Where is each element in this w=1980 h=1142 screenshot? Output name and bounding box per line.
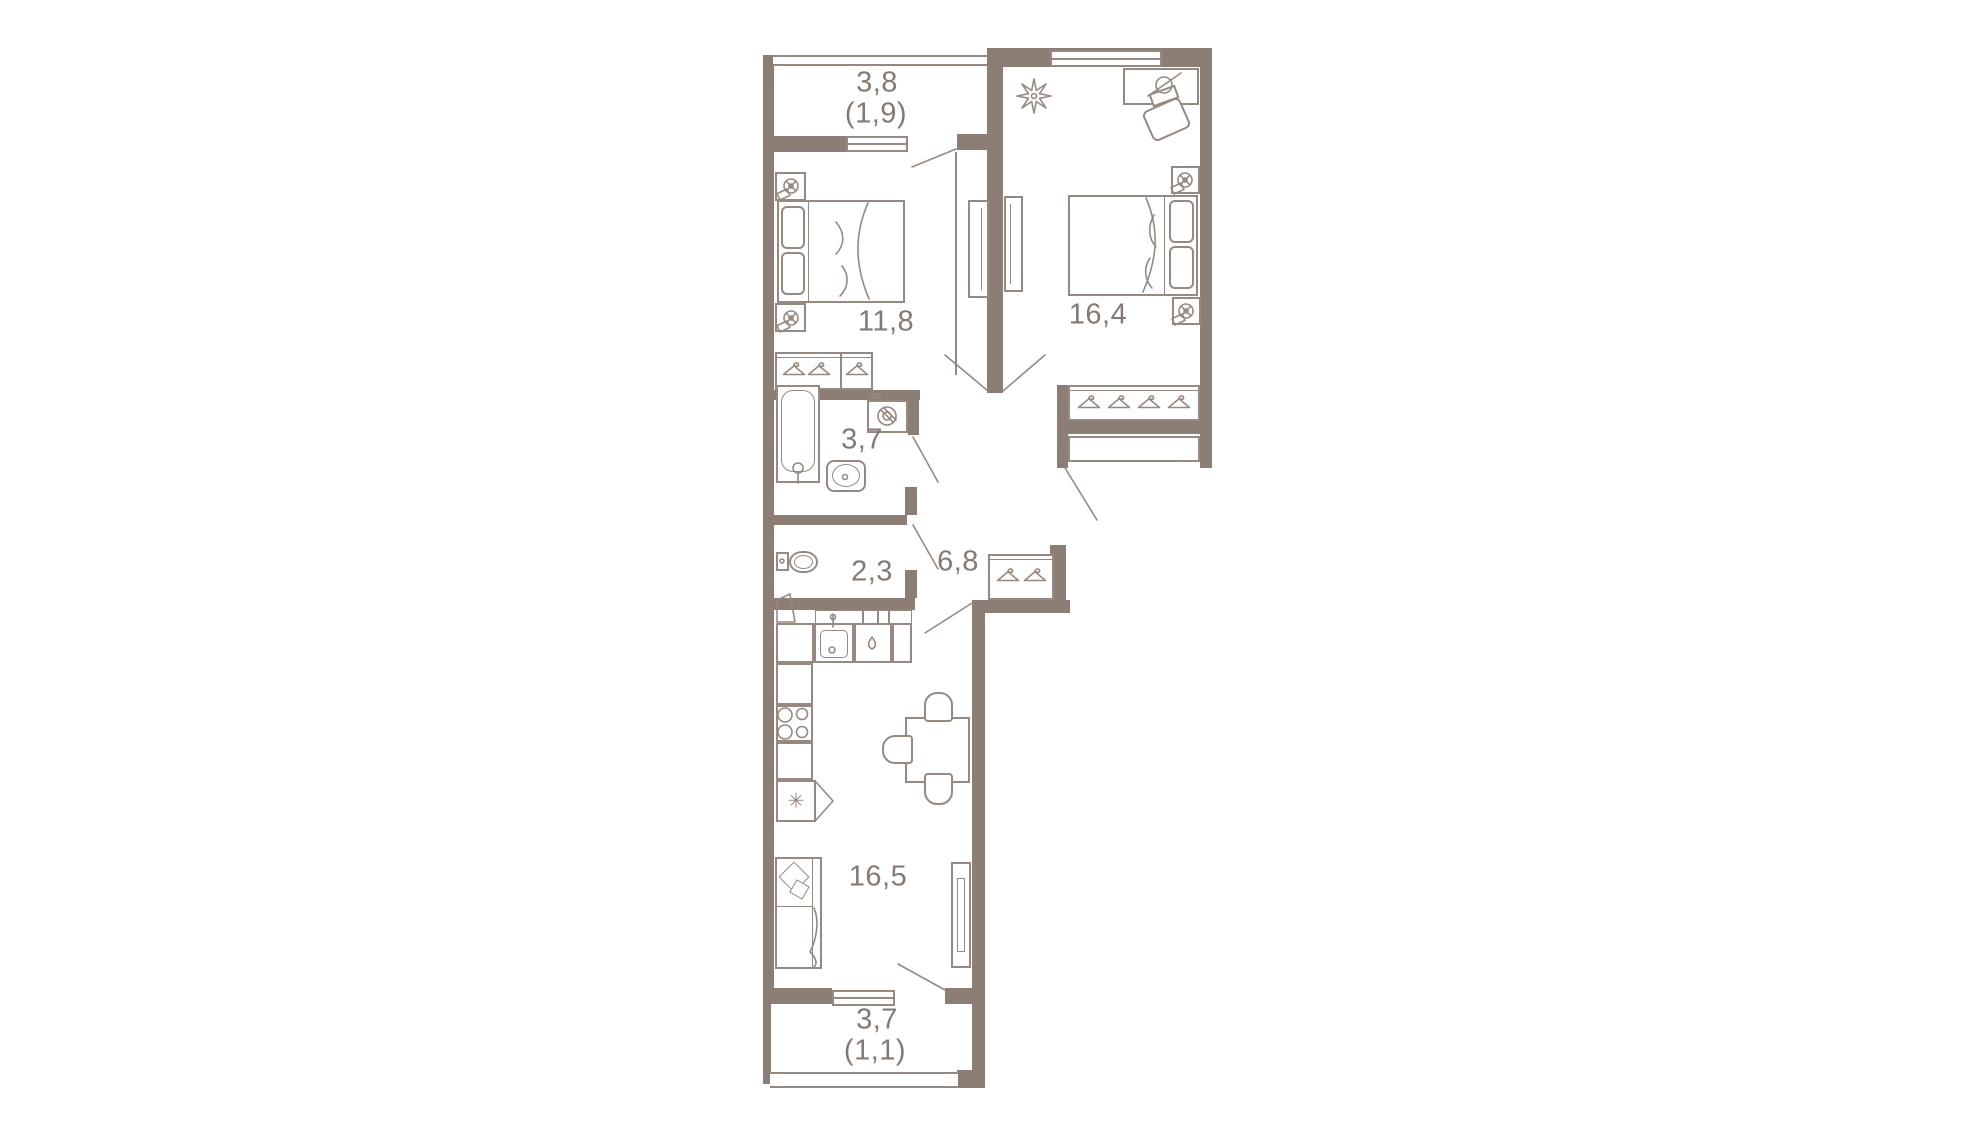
dishwasher-unit	[854, 623, 892, 663]
sofa-seat-line	[777, 906, 813, 907]
wall-exterior-right-top	[1200, 48, 1212, 468]
toilet-bowl-inner	[794, 555, 813, 569]
kitchen-counter-left	[776, 663, 813, 705]
door-bathroom	[913, 437, 938, 482]
wall-wc-right-stub	[905, 570, 917, 598]
bathroom-sink-bowl	[832, 464, 860, 487]
door-living	[925, 603, 972, 633]
room-label-hallway: 6,8	[937, 546, 979, 579]
room-label-bedroom-large: 16,4	[1069, 299, 1127, 332]
nightstand	[775, 172, 806, 201]
wall-bathroom-wc-divider	[763, 515, 907, 525]
wall-bathroom-right-lower	[905, 487, 917, 515]
wardrobe-top-line	[1070, 390, 1198, 391]
bed-headboard-line	[808, 202, 809, 301]
room-label-bedroom-small: 11,8	[858, 306, 914, 339]
wardrobe-top-line	[777, 357, 871, 358]
room-label-balcony-bottom-secondary: (1,1)	[844, 1035, 906, 1068]
kitchen-counter-end	[892, 623, 912, 663]
dining-chair	[924, 692, 953, 722]
sliding-door-bedroom-large-line	[1010, 204, 1011, 284]
bathtub-inner	[781, 390, 815, 472]
pillow	[1169, 246, 1194, 289]
wall-wc-kitchen-b	[815, 598, 915, 610]
room-label-balcony-top-secondary: (1,9)	[845, 98, 907, 131]
bed-headboard-line	[1164, 197, 1165, 294]
wall-wc-kitchen-a	[763, 598, 815, 610]
stove	[776, 705, 813, 742]
apartment-floor-plan: ✳	[0, 0, 1980, 1142]
wall-living-right	[972, 600, 985, 1084]
plant-icon	[1017, 79, 1051, 113]
wall-bathroom-right-upper	[908, 390, 919, 435]
wall-exterior-left	[763, 55, 774, 998]
snowflake-icon: ✳	[788, 789, 805, 814]
wardrobe-shelf	[1068, 436, 1200, 462]
door-bedroom-large	[1003, 355, 1045, 391]
sofa-front-edge	[812, 859, 813, 967]
door-wc	[913, 525, 938, 569]
toilet-tank	[776, 552, 789, 571]
sliding-door-bedroom-large	[1004, 196, 1023, 292]
wall-center	[987, 48, 1003, 393]
tv-screen	[957, 878, 965, 952]
room-label-wc: 2,3	[851, 556, 893, 589]
dining-chair	[882, 735, 913, 764]
pillow	[1169, 200, 1194, 243]
kitchen-sink-basin	[820, 630, 848, 658]
kitchen-counter-left	[776, 742, 813, 780]
wall-balcony-divider	[763, 136, 846, 152]
window-bedroom-small	[846, 136, 908, 152]
room-label-kitchen-living: 16,5	[849, 861, 907, 894]
pillow	[781, 252, 805, 295]
door-balcony-top	[912, 149, 956, 167]
kitchen-counter-corner	[776, 623, 814, 663]
wardrobe-divider	[840, 354, 842, 388]
balcony-bottom-glazing	[770, 1072, 958, 1088]
sliding-door-bedroom-small-line	[981, 208, 982, 290]
window-bedroom-large	[1050, 50, 1162, 67]
dining-chair	[924, 773, 953, 805]
wall-living-bottom-stub	[945, 988, 985, 1004]
door-balcony-bottom	[898, 964, 945, 990]
room-label-balcony-bottom-area: 3,7	[856, 1004, 898, 1037]
partition-bedroom-small	[955, 152, 957, 375]
hall-closet	[988, 554, 1054, 600]
nightstand	[775, 303, 806, 332]
room-label-bathroom: 3,7	[841, 424, 883, 457]
wall-wardrobe-mid	[1057, 421, 1212, 434]
room-label-balcony-top-area: 3,8	[856, 67, 898, 100]
nightstand	[1172, 297, 1201, 325]
balcony-top-glazing	[773, 55, 987, 66]
pillow	[781, 206, 805, 249]
fridge-door	[816, 782, 833, 820]
wall-balcony-bottom-corner	[957, 1070, 985, 1088]
sliding-door-bedroom-small	[968, 200, 989, 298]
wall-living-bottom-left	[763, 988, 832, 1004]
nightstand	[1171, 166, 1200, 194]
closet-top-line	[990, 559, 1052, 560]
door-bedroom-small	[945, 355, 988, 391]
wall-balcony-divider-stub	[957, 134, 987, 150]
door-entrance	[1065, 468, 1097, 520]
